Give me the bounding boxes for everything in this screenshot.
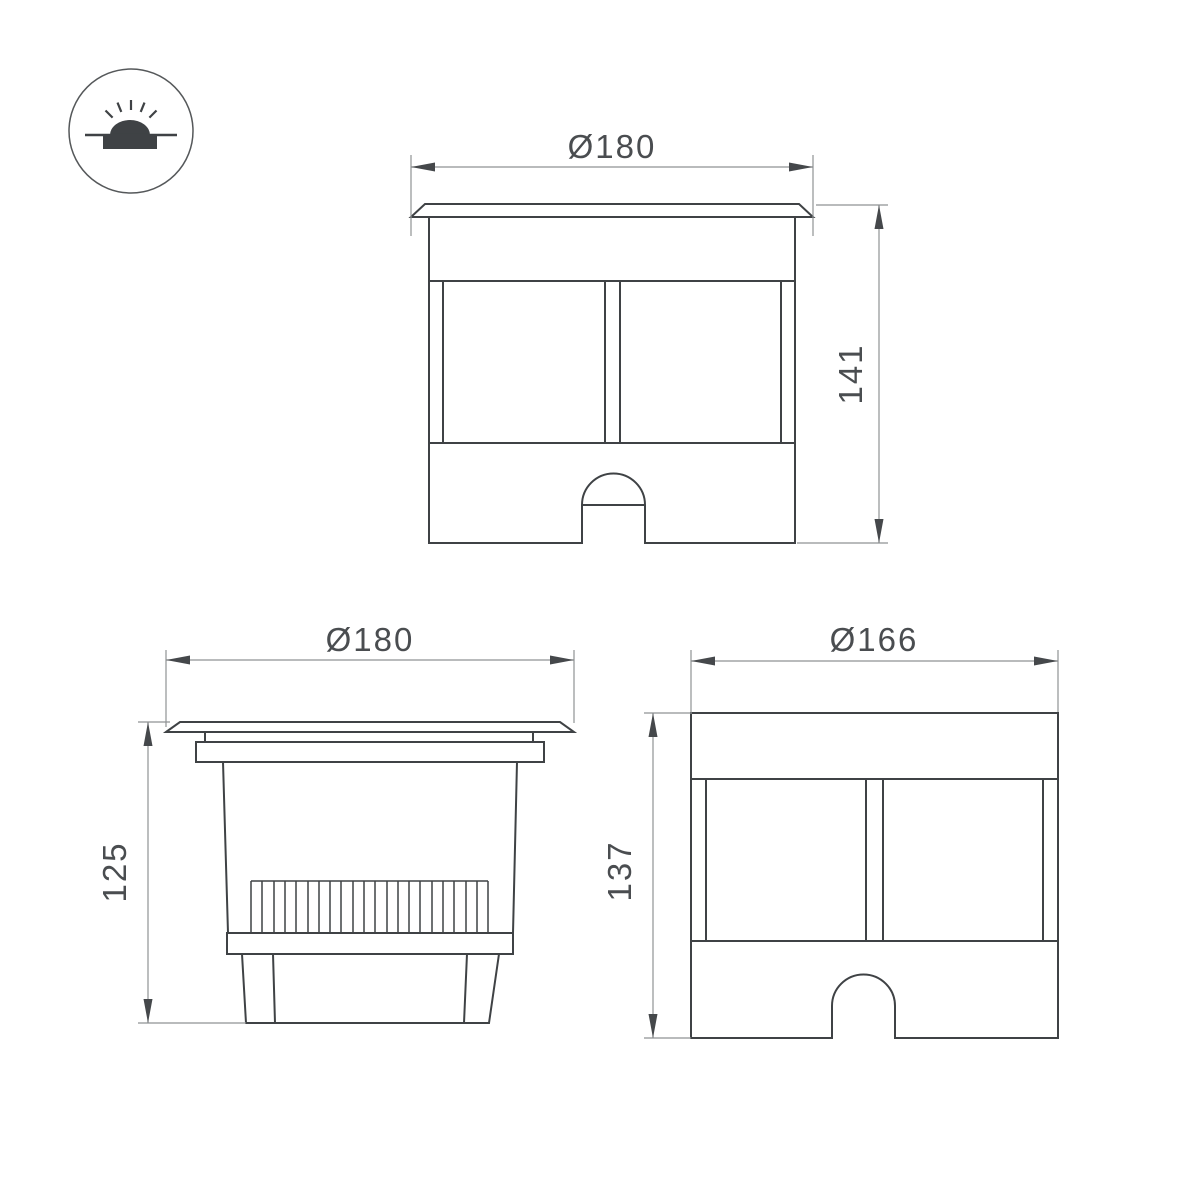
arrow-left-icon bbox=[411, 163, 435, 172]
arrow-right-icon bbox=[1034, 657, 1058, 666]
front-height-dimension: 141 bbox=[797, 205, 888, 543]
recessed-housing-icon bbox=[103, 136, 157, 149]
side-base-housing bbox=[242, 954, 499, 1023]
side-collar bbox=[196, 742, 544, 762]
arrow-down-icon bbox=[649, 1014, 658, 1038]
recessed-ground-light-icon bbox=[69, 69, 193, 193]
body-view-drawing: Ø166 137 bbox=[601, 621, 1058, 1038]
light-rays-icon bbox=[106, 100, 157, 118]
body-height-label: 137 bbox=[601, 840, 638, 901]
side-height-label: 125 bbox=[96, 841, 133, 902]
arrow-up-icon bbox=[649, 713, 658, 737]
front-height-label: 141 bbox=[832, 343, 869, 404]
arrow-down-icon bbox=[144, 999, 153, 1023]
arrow-left-icon bbox=[166, 656, 190, 665]
side-diameter-dimension: Ø180 bbox=[166, 621, 574, 727]
side-heatsink-fins bbox=[251, 881, 488, 933]
arrow-up-icon bbox=[875, 205, 884, 229]
fin-lines bbox=[251, 881, 488, 933]
front-body-outline bbox=[429, 217, 795, 543]
side-body-taper bbox=[223, 762, 517, 933]
technical-drawing-canvas: Ø180 141 bbox=[0, 0, 1200, 1200]
arrow-right-icon bbox=[789, 163, 813, 172]
body-diameter-dimension: Ø166 bbox=[691, 621, 1058, 712]
body-outline bbox=[691, 713, 1058, 1038]
arrow-left-icon bbox=[691, 657, 715, 666]
lamp-dome-icon bbox=[110, 120, 150, 135]
side-mounting-plate bbox=[227, 933, 513, 954]
arrow-up-icon bbox=[144, 722, 153, 746]
side-flange bbox=[166, 722, 574, 732]
extension-lines bbox=[138, 722, 246, 1023]
side-view-drawing: Ø180 125 bbox=[96, 621, 574, 1023]
front-view-drawing: Ø180 141 bbox=[411, 128, 888, 543]
arrow-right-icon bbox=[550, 656, 574, 665]
body-diameter-label: Ø166 bbox=[830, 621, 919, 658]
body-height-dimension: 137 bbox=[601, 713, 692, 1038]
arrow-down-icon bbox=[875, 519, 884, 543]
side-diameter-label: Ø180 bbox=[326, 621, 415, 658]
side-step-lines bbox=[205, 732, 533, 742]
extension-lines bbox=[644, 713, 692, 1038]
front-diameter-label: Ø180 bbox=[568, 128, 657, 165]
extension-lines bbox=[166, 650, 574, 727]
extension-lines bbox=[691, 650, 1058, 712]
front-flange bbox=[411, 204, 813, 217]
